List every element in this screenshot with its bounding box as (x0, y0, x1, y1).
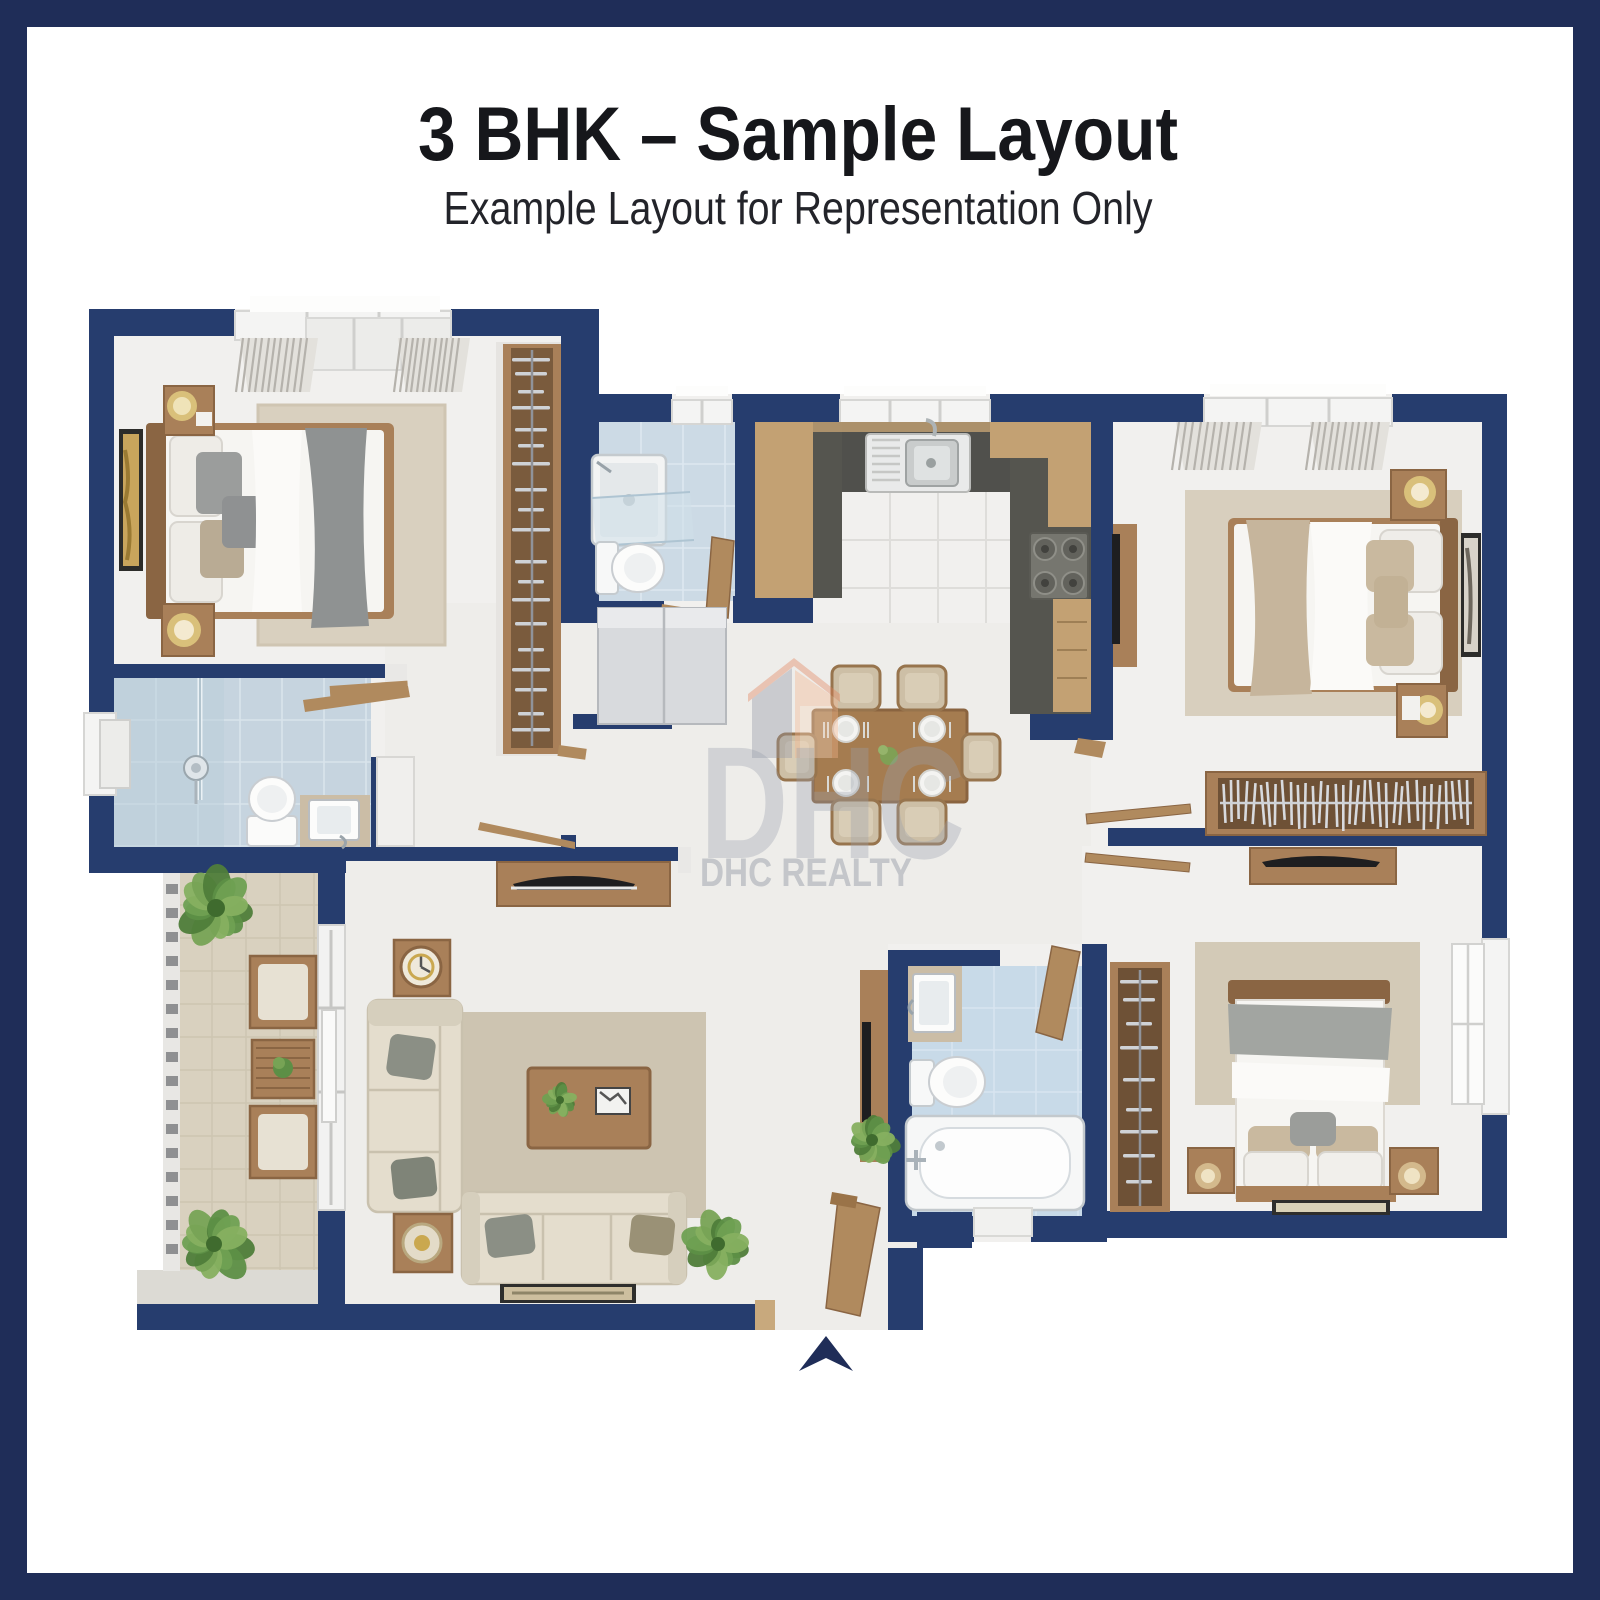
svg-text:3 BHK – Sample Layout: 3 BHK – Sample Layout (418, 92, 1178, 177)
svg-text:DHC REALTY: DHC REALTY (700, 851, 912, 895)
svg-text:Example Layout for Representat: Example Layout for Representation Only (444, 182, 1153, 234)
